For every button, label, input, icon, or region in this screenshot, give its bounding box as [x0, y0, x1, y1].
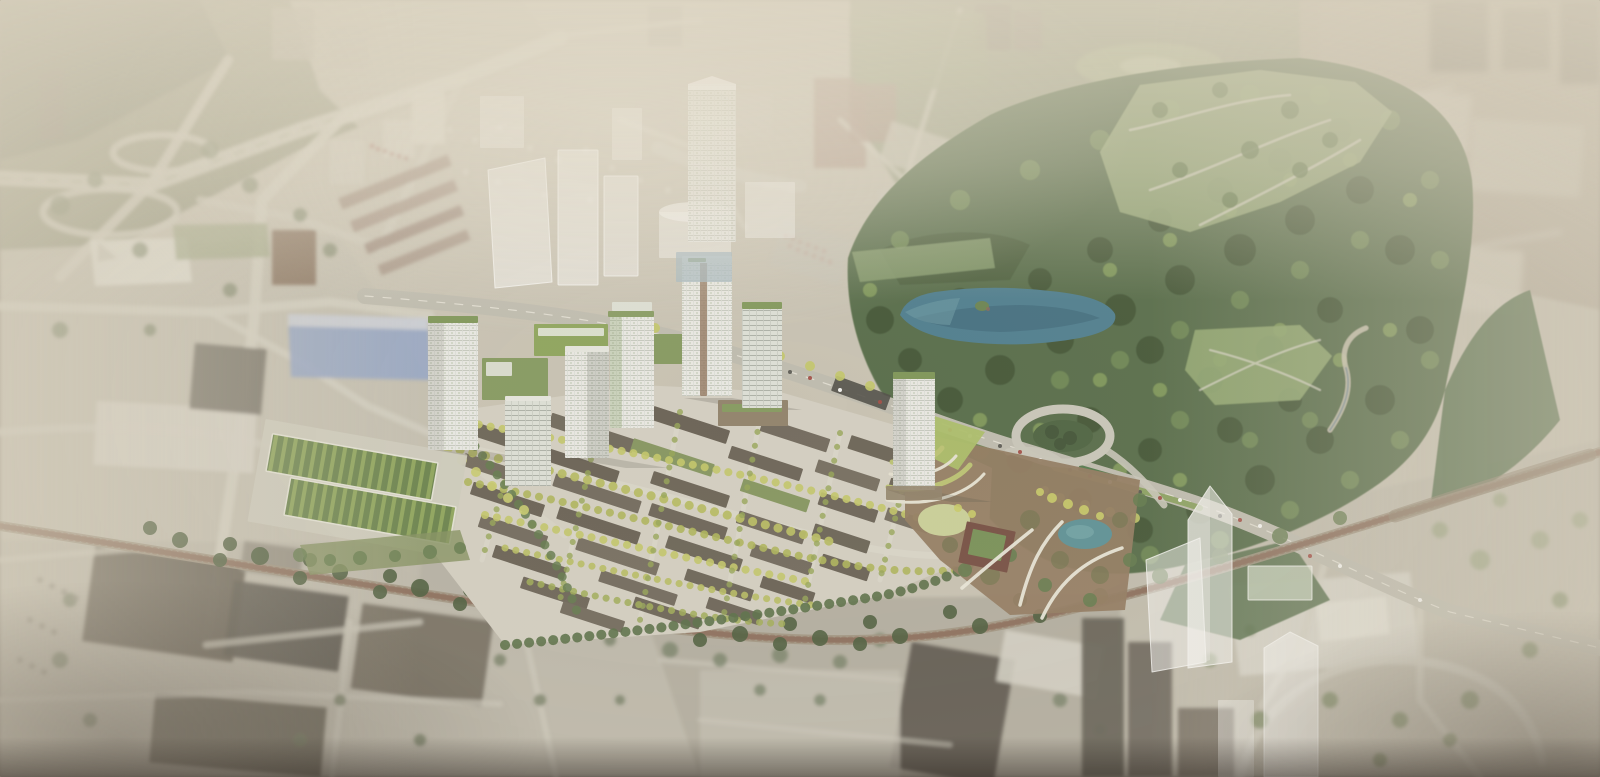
- aerial-rendering-canvas: [0, 0, 1600, 777]
- aerial-rendering-image: [0, 0, 1600, 777]
- haze-overlays: [0, 0, 1600, 777]
